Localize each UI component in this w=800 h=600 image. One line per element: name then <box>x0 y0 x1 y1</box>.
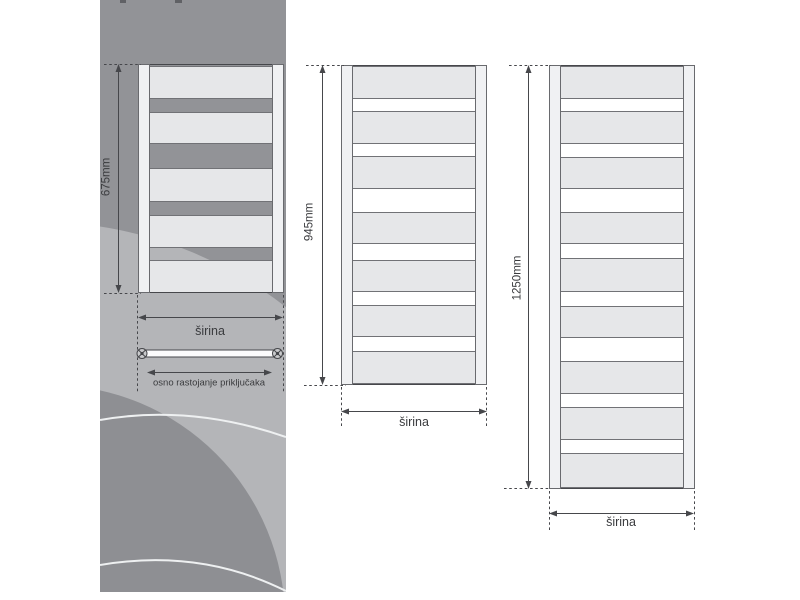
radiator-panel <box>561 67 684 99</box>
radiator-panel <box>353 112 476 144</box>
radiator-rail-left <box>342 66 353 385</box>
radiator-panel <box>353 306 476 337</box>
connection-distance-label: osno rastojanje priključaka <box>153 378 265 388</box>
connection-pipe <box>146 350 274 357</box>
radiator-rail-right <box>476 66 487 385</box>
pipe-valve-center <box>140 352 143 355</box>
pipe-valve-center <box>276 352 279 355</box>
height-dimension-label: 1250mm <box>512 256 524 301</box>
radiator-rail-left <box>139 65 150 293</box>
radiator-panel <box>561 362 684 394</box>
radiator-panel <box>561 112 684 144</box>
radiator-panel <box>561 213 684 244</box>
width-dimension-label: širina <box>195 325 225 338</box>
radiator-panel <box>353 213 476 244</box>
radiator-rail-left <box>550 66 561 489</box>
radiator-945mm <box>341 66 487 385</box>
radiator-panel <box>353 261 476 292</box>
radiator-panel <box>561 158 684 189</box>
height-dimension-label: 675mm <box>101 158 113 196</box>
radiator-panel <box>353 352 476 384</box>
radiator-panel <box>561 259 684 292</box>
diagram-canvas <box>0 0 800 600</box>
radiator-panel <box>561 307 684 338</box>
radiator-panel <box>150 261 273 293</box>
radiator-panel <box>150 169 273 202</box>
width-dimension-label: širina <box>399 416 429 429</box>
radiator-panel <box>150 216 273 248</box>
radiator-675mm <box>138 65 284 293</box>
radiator-panel <box>353 67 476 99</box>
radiator-panel <box>561 408 684 440</box>
radiator-rail-right <box>684 66 695 489</box>
catalog-page: 675mm 945mm 1250mm širina širina širina … <box>0 0 800 600</box>
radiator-panel <box>353 157 476 189</box>
radiator-rail-right <box>273 65 284 293</box>
radiator-panel <box>150 113 273 144</box>
radiator-panel <box>561 454 684 488</box>
radiator-1250mm <box>549 66 695 489</box>
height-dimension-label: 945mm <box>304 203 316 241</box>
width-dimension-label: širina <box>606 516 636 529</box>
radiator-panel <box>150 67 273 99</box>
